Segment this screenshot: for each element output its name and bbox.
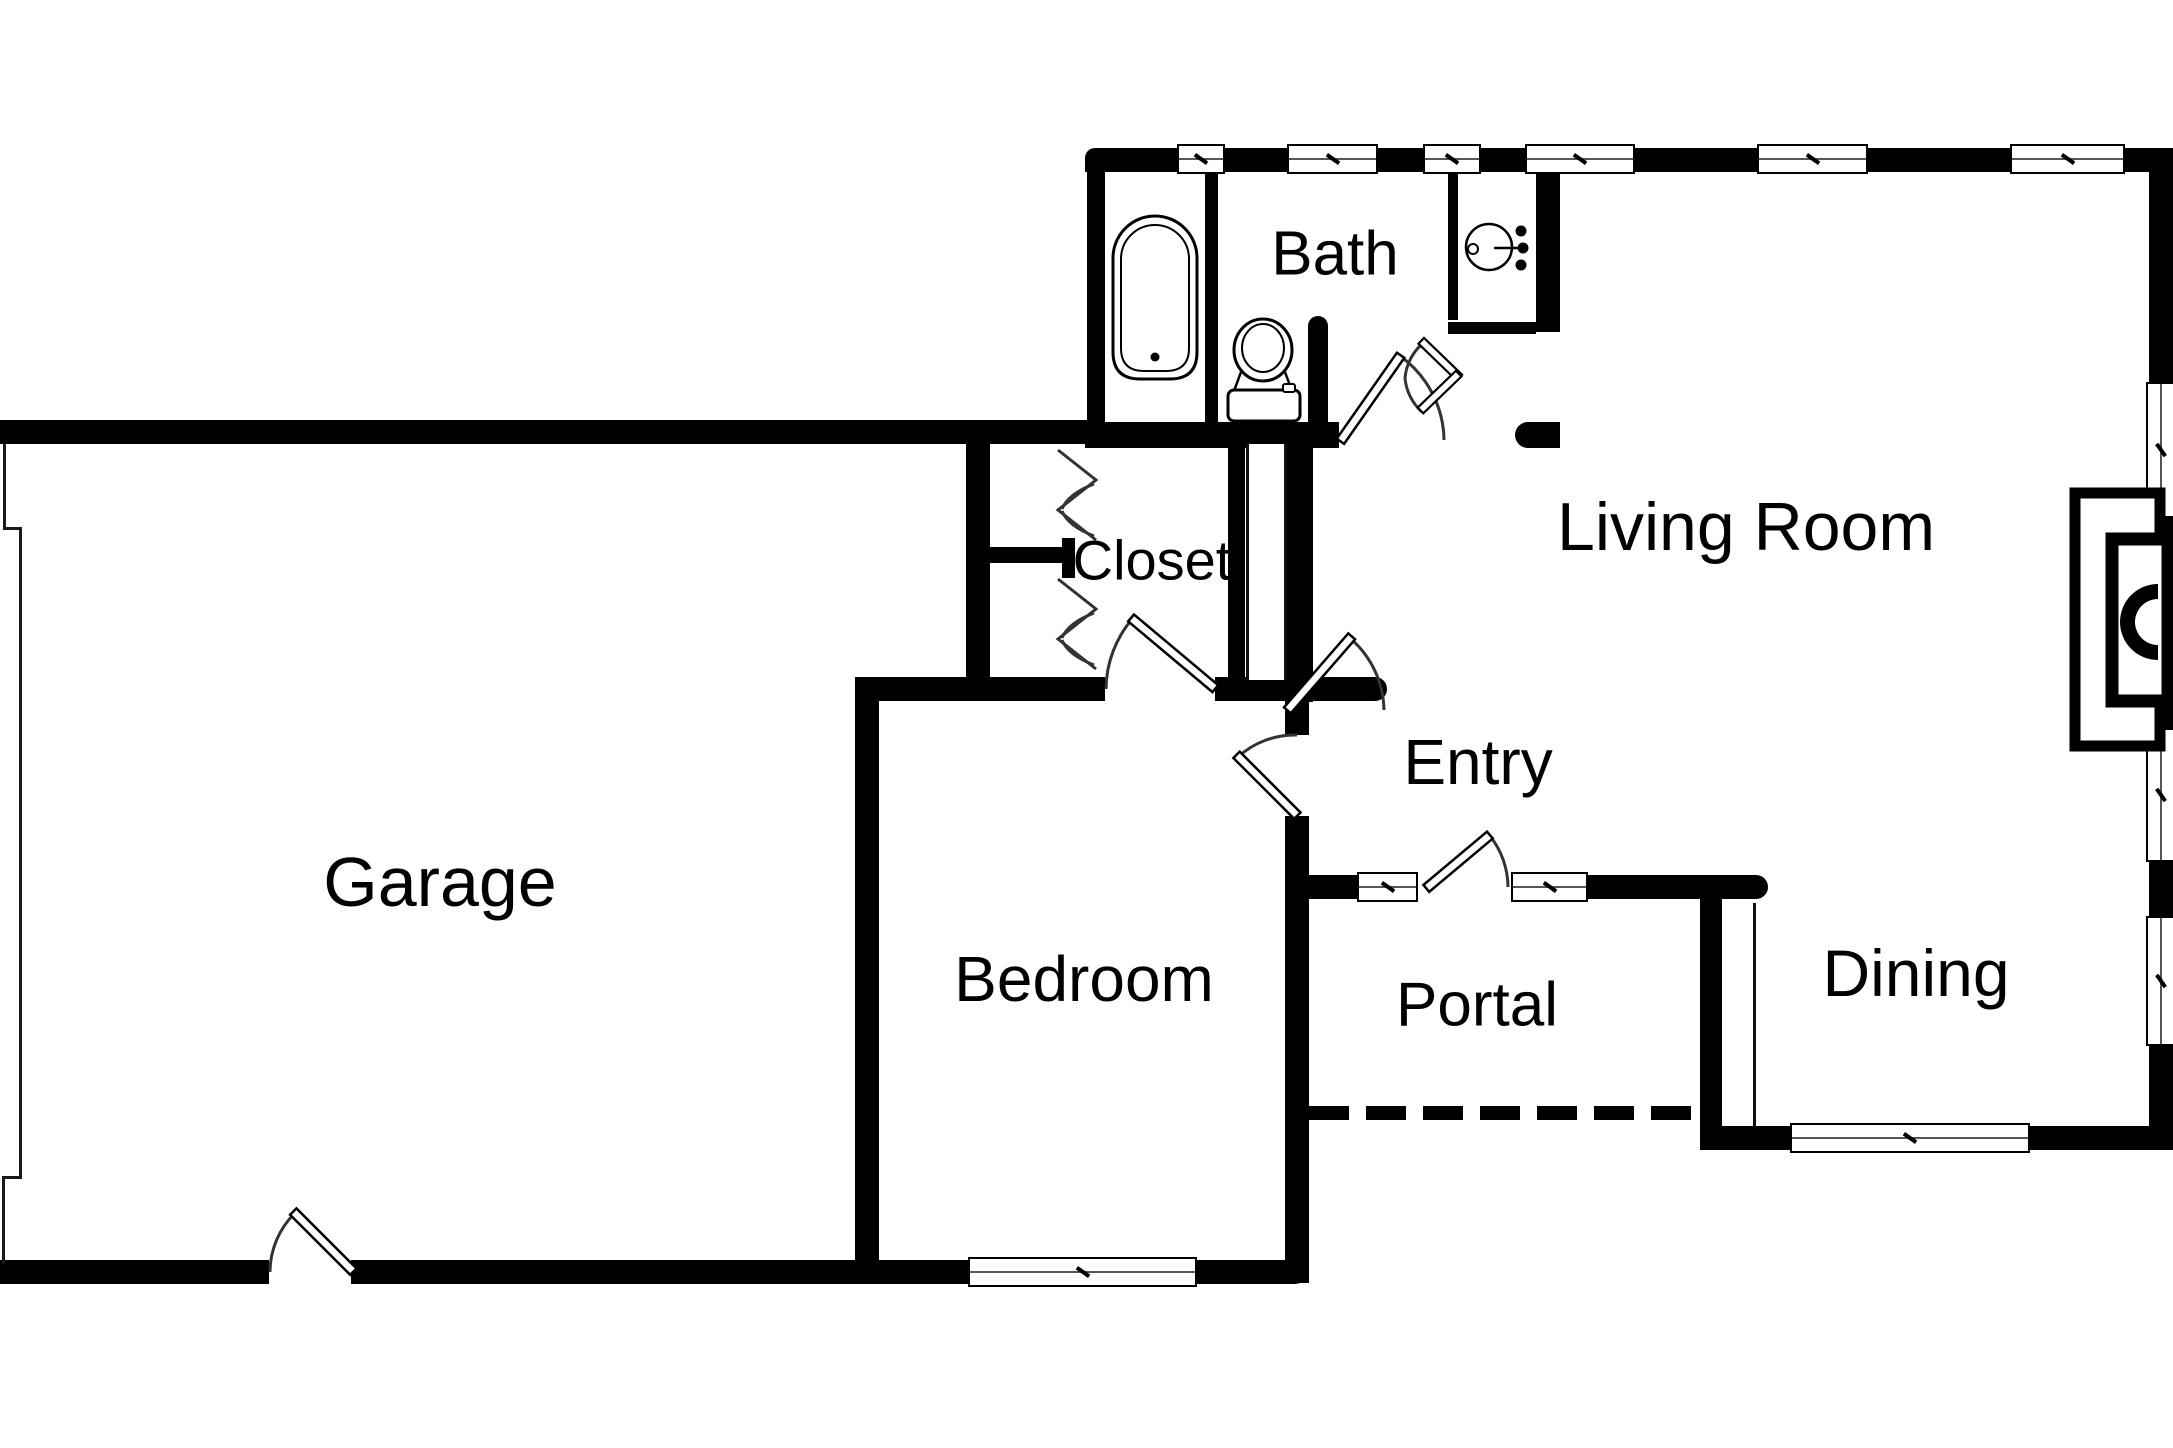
room-label-portal: Portal [1396, 970, 1558, 1041]
closet-bifold-upper [1058, 450, 1096, 540]
hall-door-swing [1284, 633, 1384, 713]
doors-and-fixtures-layer [0, 0, 2173, 1448]
room-label-dining: Dining [1822, 935, 2009, 1011]
room-label-closet: Closet [1073, 528, 1232, 593]
entry-door-swing [1423, 832, 1508, 892]
room-label-bedroom: Bedroom [954, 942, 1214, 1016]
floor-plan: Garage Bath Closet Living Room Entry Bed… [0, 0, 2173, 1448]
garage-door-swing [270, 1208, 357, 1274]
bath-double-door-swing [1405, 338, 1462, 413]
fireplace-icon [2075, 493, 2168, 746]
room-label-living-room: Living Room [1557, 488, 1935, 566]
room-label-garage: Garage [323, 842, 556, 922]
bathtub-icon [1113, 216, 1197, 379]
closet-door-swing [1106, 614, 1218, 692]
closet-bifold-lower [1058, 579, 1096, 669]
room-label-entry: Entry [1403, 725, 1552, 799]
sink-icon [1466, 224, 1529, 271]
toilet-icon [1228, 319, 1300, 421]
bedroom-door-swing [1233, 735, 1300, 819]
room-label-bath: Bath [1271, 219, 1399, 290]
